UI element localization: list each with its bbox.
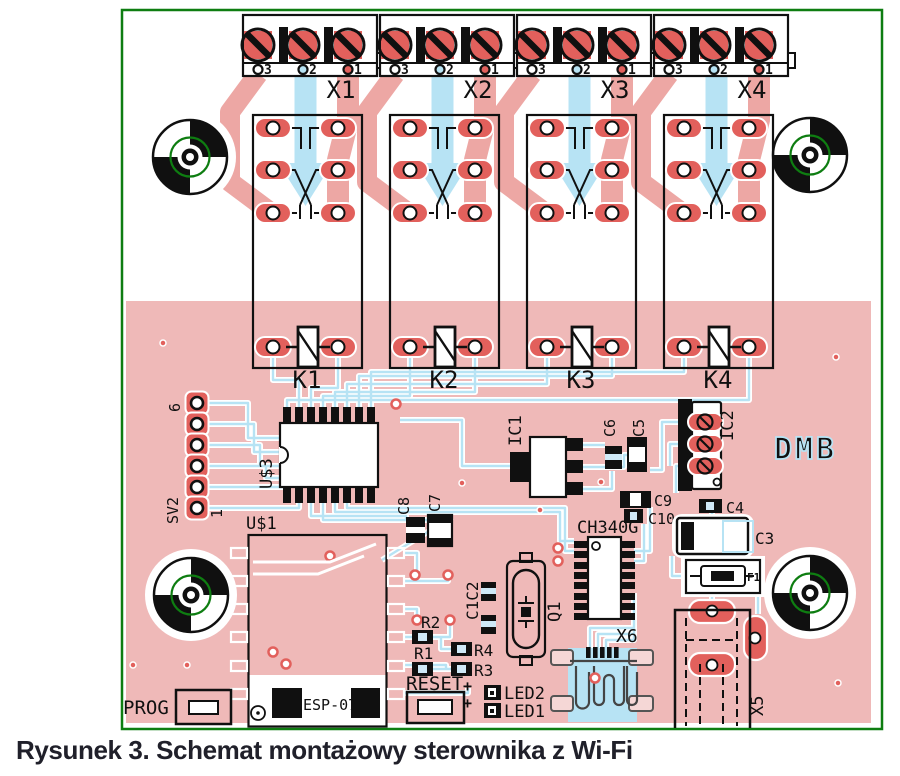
c1c2-label: C1C2 (463, 581, 482, 620)
terminal-pin-number: 2 (720, 63, 728, 78)
led1-label: LED1 (504, 702, 545, 722)
sv2-pin1-label: 1 (208, 509, 226, 518)
prog-label: PROG (123, 697, 169, 719)
figure-page: K1 K2 K3 K4 3 2 1 3 2 1 3 2 1 3 2 1 X1 X… (0, 0, 900, 776)
sv2-label: SV2 (164, 497, 182, 524)
c9-label: C9 (654, 492, 672, 510)
led2-label: LED2 (504, 684, 545, 704)
terminal-pin-number: 3 (675, 63, 683, 78)
terminal-pin-number: 3 (264, 63, 272, 78)
dmb-watermark: DMB (774, 432, 837, 467)
sv2-pin6-label: 6 (166, 403, 184, 412)
x5-label: X5 (748, 696, 768, 716)
mounting-hole (764, 547, 856, 639)
f1-label: F1 (747, 571, 761, 584)
esp07-label: ESP-07 (303, 696, 357, 714)
terminal-pin-number: 2 (583, 63, 591, 78)
fuse-f1: F1 (681, 556, 765, 597)
mounting-hole (145, 549, 237, 641)
x6-label: X6 (616, 626, 638, 647)
terminal-pin-number: 2 (446, 63, 454, 78)
terminal-label: X2 (464, 76, 493, 104)
r2-label: R2 (421, 613, 440, 632)
r4-label: R4 (474, 641, 493, 660)
r1-label: R1 (414, 644, 433, 663)
pcb-assembly-drawing: K1 K2 K3 K4 3 2 1 3 2 1 3 2 1 3 2 1 X1 X… (0, 0, 900, 736)
mounting-hole (764, 109, 856, 201)
relay-label: K1 (293, 366, 322, 394)
terminal-label: X3 (601, 76, 630, 104)
figure-caption: Rysunek 3. Schemat montażowy sterownika … (16, 735, 886, 766)
relay-label: K4 (704, 366, 733, 394)
terminal-pin-number: 3 (538, 63, 546, 78)
terminal-label: X1 (327, 76, 356, 104)
terminal-pin-number: 2 (309, 63, 317, 78)
reset-label: RESET (406, 673, 463, 695)
q1-label: Q1 (545, 602, 565, 622)
relay-label: K2 (430, 366, 459, 394)
c8-label: C8 (395, 497, 413, 515)
c6-label: C6 (601, 419, 619, 437)
r3-label: R3 (474, 661, 493, 680)
c10-label: C10 (648, 510, 675, 528)
ic1-label: IC1 (506, 415, 526, 446)
u1-label: U$1 (246, 514, 277, 534)
c7-label: C7 (426, 494, 444, 512)
c5-label: C5 (630, 419, 648, 437)
terminal-label: X4 (738, 76, 767, 104)
relay-label: K3 (567, 366, 596, 394)
ic2-label: IC2 (718, 410, 738, 441)
u3-label: U$3 (257, 458, 277, 489)
mounting-hole (144, 111, 236, 203)
c3-label: C3 (755, 529, 774, 548)
terminal-pin-number: 3 (401, 63, 409, 78)
ic-ch340g: CH340G (574, 518, 638, 620)
